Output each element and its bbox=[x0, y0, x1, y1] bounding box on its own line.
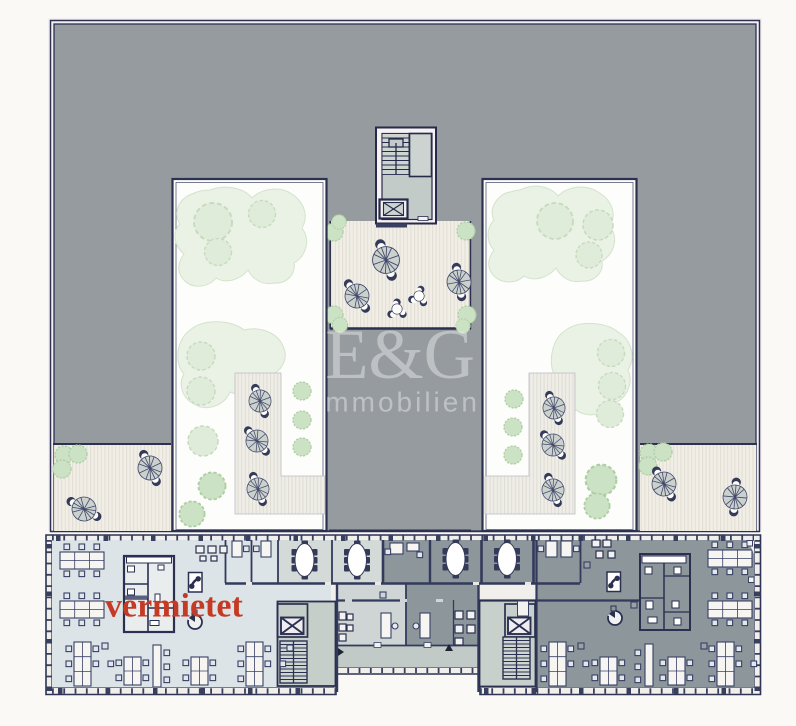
svg-text:E&G: E&G bbox=[325, 316, 475, 394]
svg-text:immobilien: immobilien bbox=[316, 387, 480, 418]
svg-text:vermietet: vermietet bbox=[105, 588, 243, 625]
